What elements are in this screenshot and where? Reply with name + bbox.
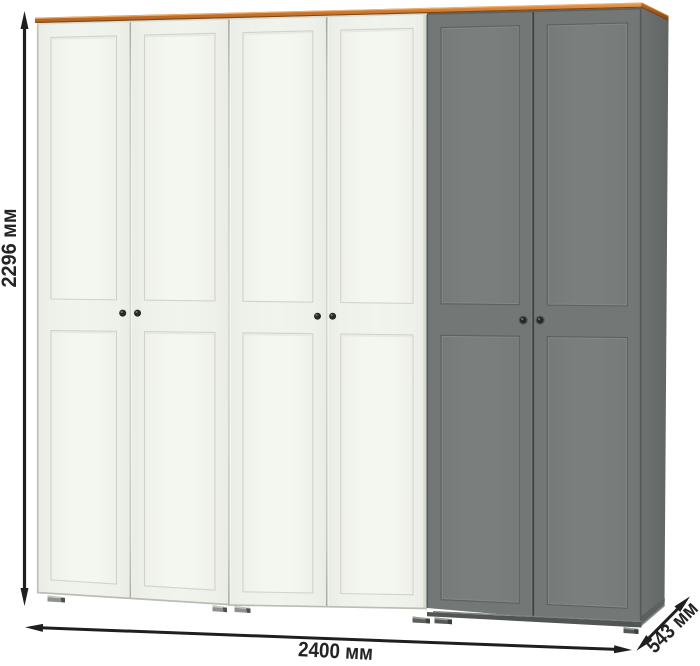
svg-text:2296 мм: 2296 мм: [0, 209, 21, 288]
svg-text:2400 мм: 2400 мм: [297, 638, 373, 665]
